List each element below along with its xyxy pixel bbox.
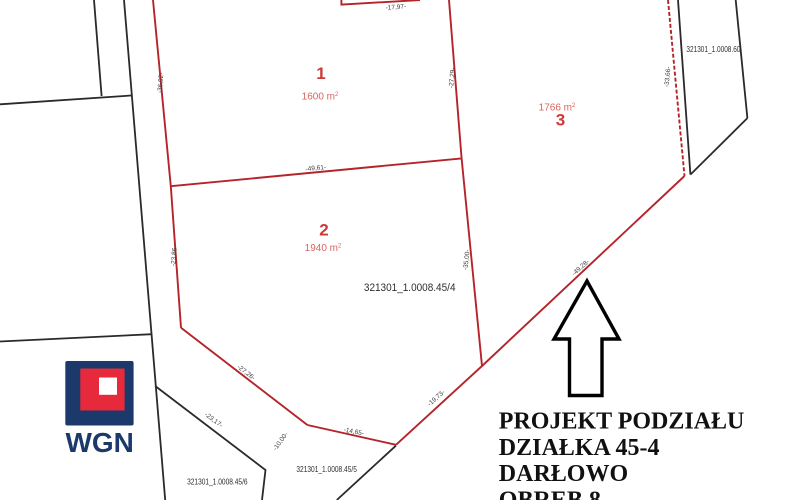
svg-text:PROJEKT PODZIAŁU: PROJEKT PODZIAŁU	[499, 409, 745, 435]
svg-text:-10,00-: -10,00-	[272, 431, 290, 452]
svg-text:1940 m2: 1940 m2	[305, 243, 342, 254]
svg-text:-17,97-: -17,97-	[385, 3, 406, 11]
svg-text:321301_1.0008.60: 321301_1.0008.60	[686, 45, 740, 54]
svg-text:321301_1.0008.45/6: 321301_1.0008.45/6	[187, 478, 248, 487]
svg-text:OBRĘB 8: OBRĘB 8	[499, 488, 601, 500]
svg-text:-33,66-: -33,66-	[664, 66, 673, 87]
svg-text:2: 2	[319, 221, 328, 240]
svg-text:-23,17-: -23,17-	[203, 411, 224, 429]
svg-text:321301_1.0008.45/5: 321301_1.0008.45/5	[296, 465, 357, 474]
svg-text:1600 m2: 1600 m2	[302, 92, 339, 103]
svg-text:3: 3	[556, 111, 565, 130]
svg-text:DZIAŁKA 45-4: DZIAŁKA 45-4	[499, 435, 660, 461]
svg-text:WGN: WGN	[66, 427, 134, 458]
svg-text:-35,00-: -35,00-	[462, 249, 471, 270]
svg-text:-19,73-: -19,73-	[426, 389, 446, 408]
svg-text:-23,86-: -23,86-	[170, 245, 178, 266]
svg-text:DARŁOWO: DARŁOWO	[499, 461, 628, 487]
svg-text:-49,28-: -49,28-	[571, 258, 591, 277]
svg-text:-36,92-: -36,92-	[157, 72, 166, 93]
svg-text:321301_1.0008.45/4: 321301_1.0008.45/4	[364, 282, 456, 294]
svg-text:1: 1	[316, 64, 325, 83]
